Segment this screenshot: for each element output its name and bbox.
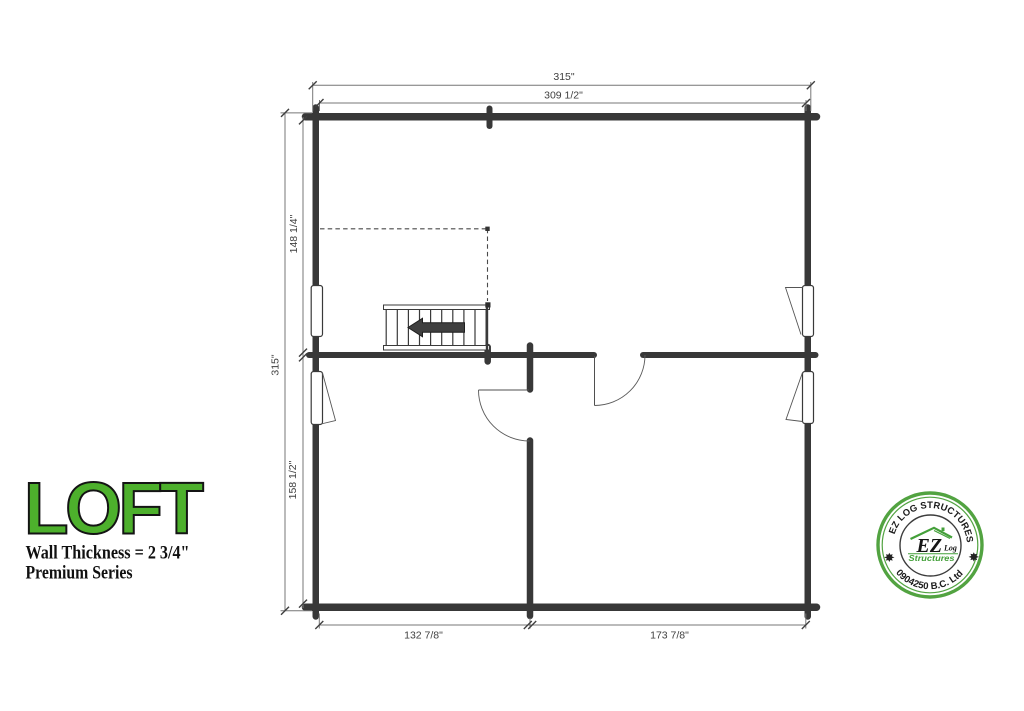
svg-text:315": 315": [553, 71, 575, 83]
svg-text:148 1/4": 148 1/4": [288, 214, 300, 253]
svg-text:315": 315": [270, 354, 282, 376]
svg-text:Structures: Structures: [909, 553, 955, 563]
svg-text:Premium Series: Premium Series: [26, 563, 133, 584]
svg-text:158 1/2": 158 1/2": [287, 460, 299, 499]
svg-text:Wall Thickness = 2 3/4": Wall Thickness = 2 3/4": [26, 543, 190, 564]
svg-text:Log: Log: [943, 544, 957, 553]
svg-text:132 7/8": 132 7/8": [404, 630, 443, 642]
svg-text:LOFT: LOFT: [24, 469, 203, 550]
svg-text:173 7/8": 173 7/8": [650, 630, 689, 642]
svg-text:309 1/2": 309 1/2": [544, 90, 583, 102]
